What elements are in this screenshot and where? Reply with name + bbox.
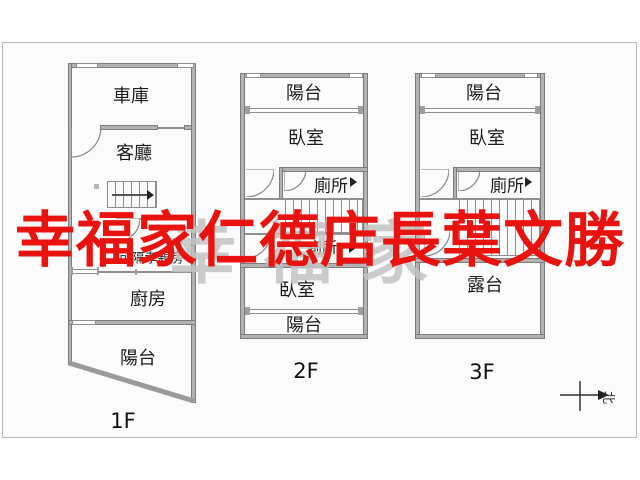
agent-watermark-text: 幸福家仁德店長葉文勝 bbox=[15, 192, 625, 279]
floor-label-2f: 2F bbox=[293, 359, 318, 383]
window-1f-top-left bbox=[76, 63, 98, 68]
window-3f-top-left bbox=[421, 73, 436, 78]
room-label-kitchen: 廚房 bbox=[130, 285, 166, 311]
door-direction-mark bbox=[525, 177, 532, 187]
room-label-balcony-2f-back: 陽台 bbox=[286, 311, 322, 337]
room-label-bedroom-2f-front: 臥室 bbox=[288, 124, 324, 150]
rail-cap bbox=[358, 307, 363, 315]
rail-2f-front-balcony bbox=[245, 108, 363, 113]
window-1f-top-right bbox=[177, 63, 194, 68]
floor-label-1f: 1F bbox=[110, 409, 135, 433]
door-arc-1f-living bbox=[71, 127, 103, 159]
rail-cap bbox=[358, 106, 363, 114]
window-2f-top-right bbox=[349, 73, 363, 78]
rail-3f-balcony bbox=[420, 108, 540, 113]
room-label-bedroom-3f: 臥室 bbox=[469, 124, 505, 150]
rail-cap bbox=[245, 307, 250, 315]
window-1f-balcony bbox=[72, 320, 96, 325]
room-label-balcony-3f: 陽台 bbox=[466, 79, 502, 105]
room-label-balcony-2f-front: 陽台 bbox=[286, 79, 322, 105]
floorplan-image: 車庫 客廳 可隔孝親房 廚房 陽台 1F bbox=[0, 0, 640, 480]
window-2f-top-left bbox=[246, 73, 261, 78]
room-label-balcony-1f: 陽台 bbox=[120, 344, 156, 370]
rail-cap bbox=[420, 106, 425, 114]
door-direction-mark bbox=[350, 177, 357, 187]
wall-1f-garage-divider bbox=[100, 125, 158, 130]
north-label: 北 bbox=[600, 391, 619, 404]
door-arc-2f-toilet bbox=[284, 169, 306, 191]
room-label-living: 客廳 bbox=[116, 139, 152, 165]
room-label-garage: 車庫 bbox=[113, 82, 149, 108]
wall-1f-divider-thin bbox=[158, 127, 187, 129]
wall-1f-divider-stub bbox=[184, 125, 192, 130]
wall-3f-bottom bbox=[415, 334, 545, 339]
door-arc-3f-toilet bbox=[458, 169, 480, 191]
floor-label-3f: 3F bbox=[469, 360, 494, 384]
stairs-1f-mark bbox=[94, 184, 99, 189]
rail-cap bbox=[245, 106, 250, 114]
window-3f-top-right bbox=[524, 73, 538, 78]
rail-cap bbox=[535, 106, 540, 114]
